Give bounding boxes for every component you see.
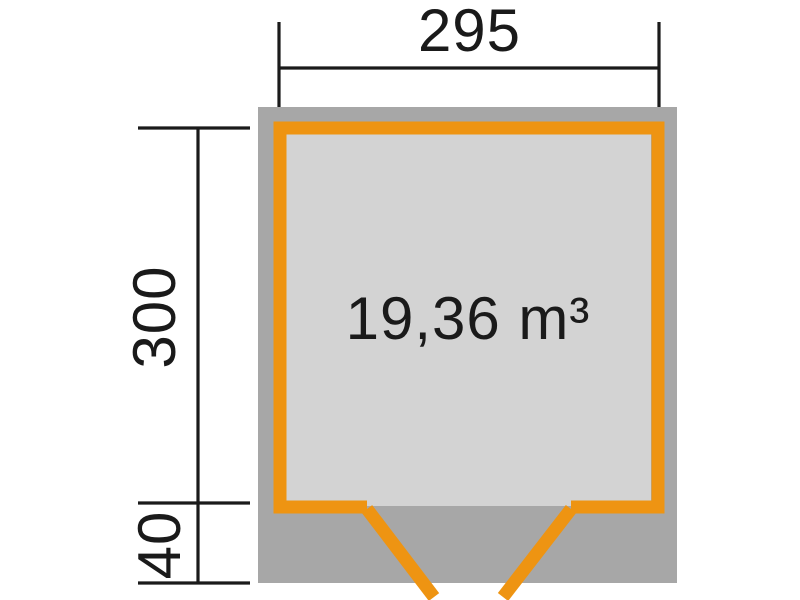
volume-label: 19,36 m³ (268, 285, 668, 353)
porch-depth-dimension-label: 40 (130, 445, 190, 600)
width-dimension-label: 295 (279, 0, 660, 62)
height-dimension-label: 300 (125, 217, 185, 417)
floor-plan-diagram: 295 300 40 19,36 m³ (0, 0, 800, 600)
